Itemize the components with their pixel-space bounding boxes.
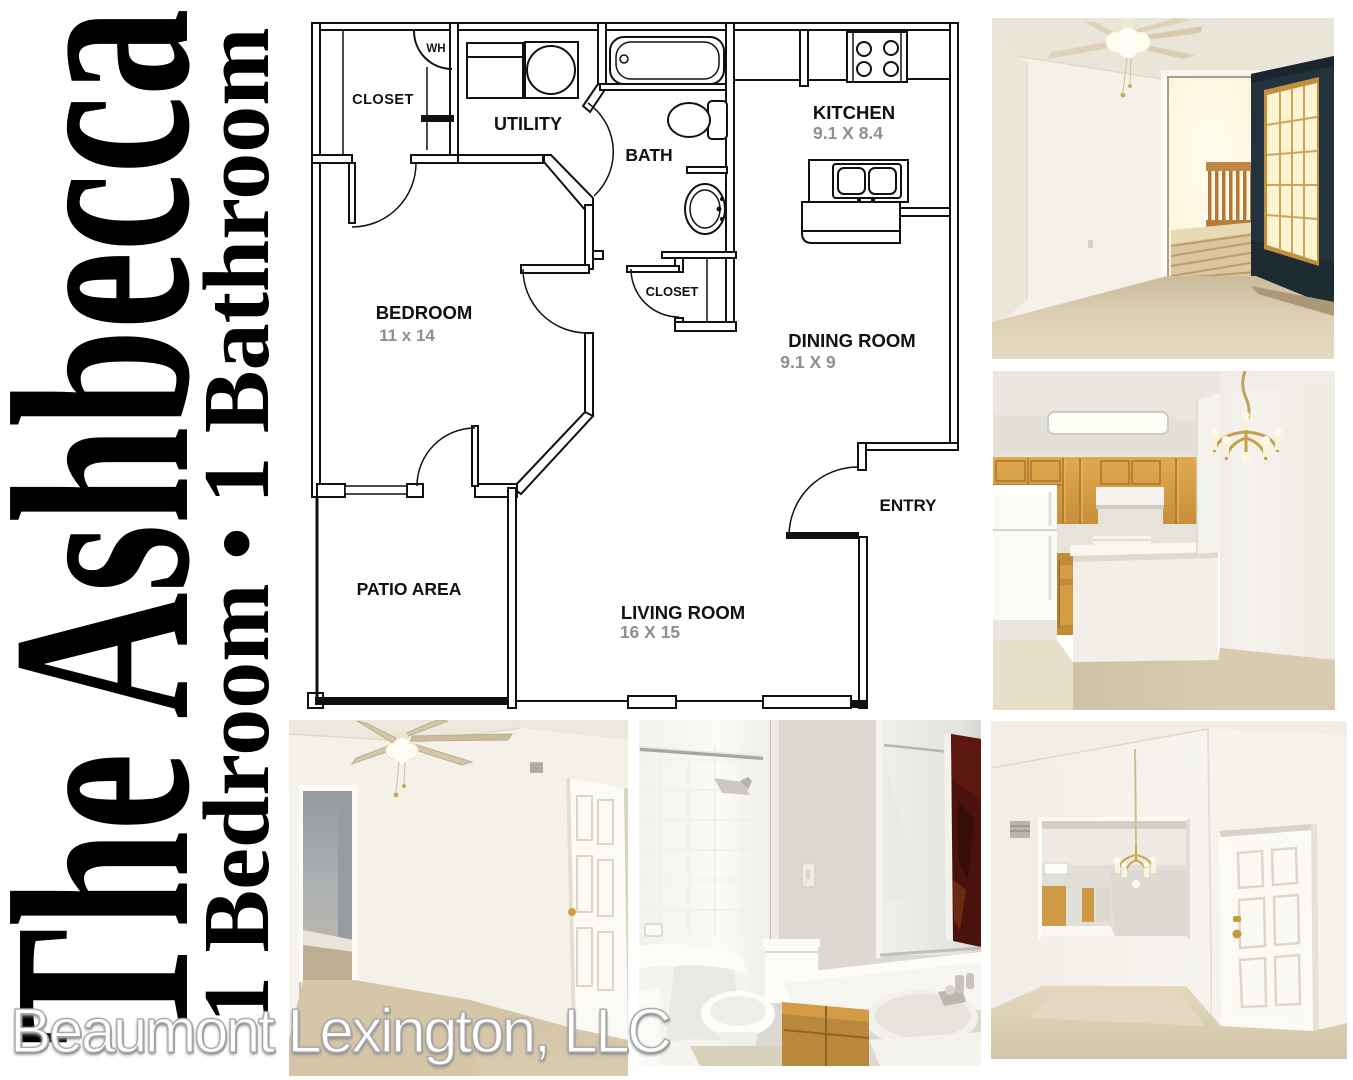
svg-text:9.1 X 8.4: 9.1 X 8.4 [813, 123, 883, 143]
svg-text:BATH: BATH [625, 145, 672, 165]
svg-text:16 X 15: 16 X 15 [620, 622, 681, 642]
svg-text:ENTRY: ENTRY [880, 496, 938, 515]
svg-text:CLOSET: CLOSET [646, 284, 699, 299]
svg-text:11 x 14: 11 x 14 [379, 326, 435, 345]
svg-text:UTILITY: UTILITY [494, 114, 562, 134]
svg-text:PATIO AREA: PATIO AREA [357, 579, 462, 599]
svg-text:DINING ROOM: DINING ROOM [788, 330, 915, 351]
svg-text:LIVING ROOM: LIVING ROOM [621, 602, 745, 623]
svg-text:WH: WH [426, 43, 445, 55]
svg-text:9.1 X 9: 9.1 X 9 [780, 352, 836, 372]
svg-text:CLOSET: CLOSET [352, 92, 414, 108]
svg-text:BEDROOM: BEDROOM [376, 302, 473, 323]
svg-text:KITCHEN: KITCHEN [813, 102, 895, 123]
